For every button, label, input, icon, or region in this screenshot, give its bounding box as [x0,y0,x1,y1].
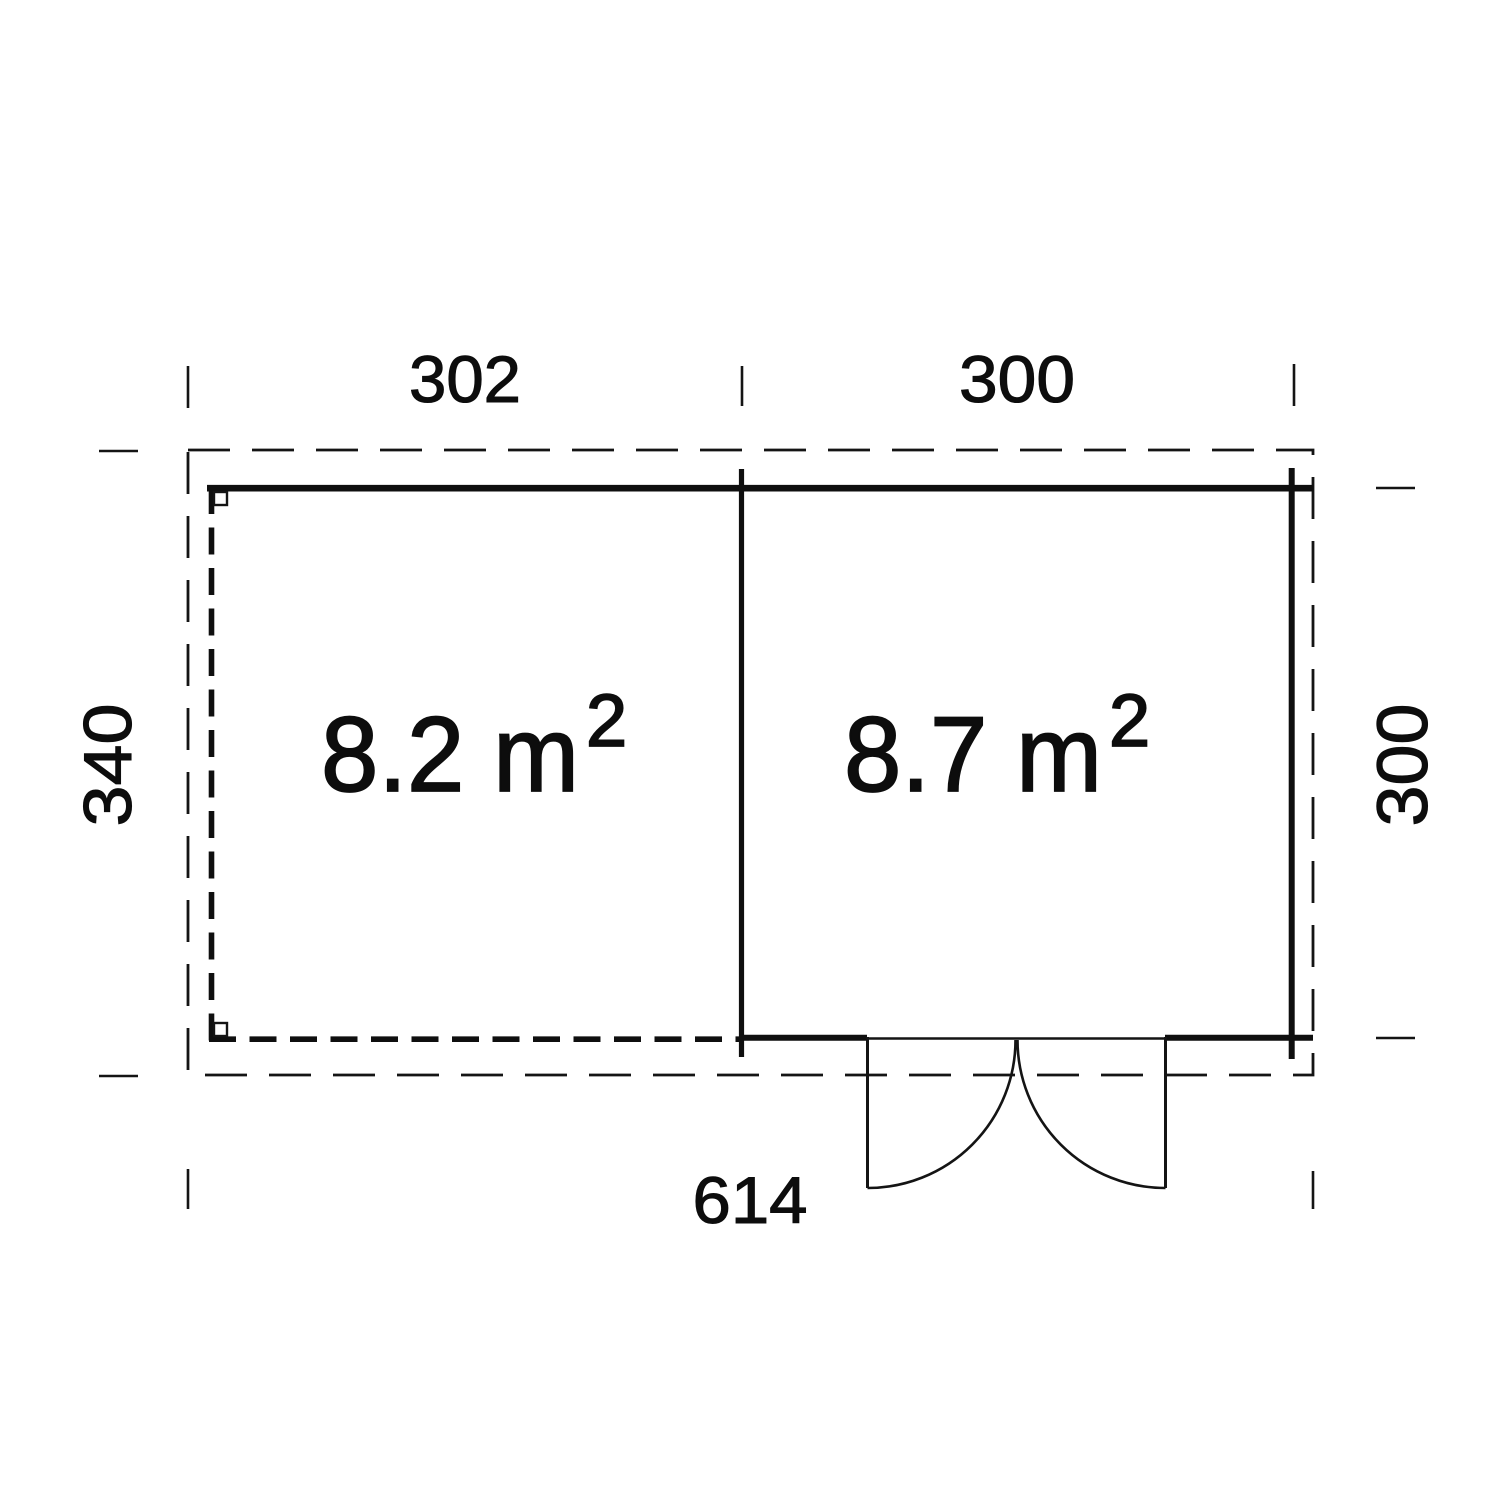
svg-text:300: 300 [959,342,1075,416]
svg-text:300: 300 [1364,704,1443,827]
svg-text:614: 614 [693,1163,808,1237]
svg-text:302: 302 [409,342,521,416]
svg-text:340: 340 [70,704,146,827]
